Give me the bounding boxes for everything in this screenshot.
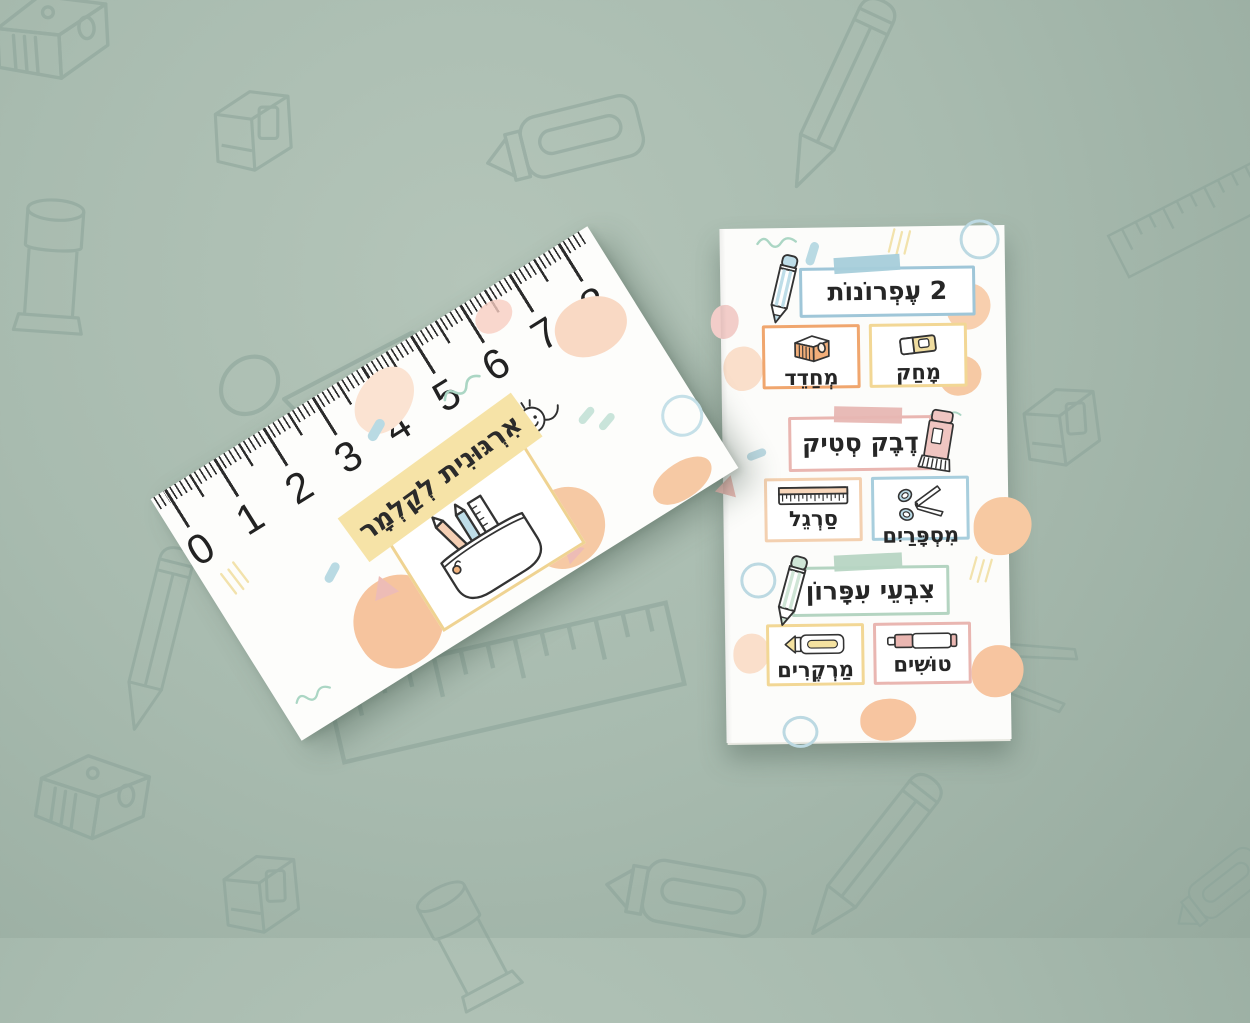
- supply-label: מַרְקֶרִים: [777, 657, 854, 682]
- ruler-icon: [777, 485, 849, 506]
- bg-sharpener-icon: [23, 742, 161, 860]
- supply-label: טוּשִׁים: [893, 652, 952, 677]
- supply-label: מִסְפָּרַיִם: [882, 523, 959, 548]
- supplies-checklist-card: 2 עֶפְרוֹנוֹת מְחַדֵד מָחַק דֶבֶק סְטִיק…: [719, 225, 1011, 743]
- supply-item-box: מִסְפָּרַיִם: [871, 476, 970, 541]
- bg-marker-icon: [593, 834, 776, 954]
- supply-item-box: טוּשִׁים: [873, 622, 972, 685]
- supply-item-box: סַרְגֵל: [764, 477, 863, 542]
- supply-item-box: מַרְקֶרִים: [766, 623, 865, 686]
- washi-tape: [834, 406, 902, 423]
- supply-item-box: מְחַדֵד: [762, 324, 861, 389]
- marker-icon: [886, 630, 958, 652]
- highlighter-icon: [782, 631, 848, 657]
- peach-smudge: [733, 633, 770, 673]
- eraser-icon: [896, 331, 940, 360]
- supply-label: 2 עֶפְרוֹנוֹת: [827, 276, 947, 306]
- bg-highlighter-icon: [470, 76, 657, 204]
- bg-sharpener-icon: [0, 0, 123, 100]
- yellow-lines: [968, 554, 996, 587]
- peach-smudge: [720, 343, 768, 394]
- ruler-number: 2: [278, 464, 320, 512]
- supply-banner-box: 2 עֶפְרוֹנוֹת: [799, 265, 976, 317]
- green-squiggle: [756, 236, 798, 250]
- green-squiggle: [292, 682, 334, 709]
- bg-glue-stick-icon: [397, 861, 533, 1022]
- supply-label: דֶבֶק סְטִיק: [802, 428, 919, 458]
- supply-item-box: מָחַק: [869, 323, 968, 388]
- yellow-lines: [216, 557, 257, 598]
- bg-glue-stick-icon: [3, 187, 101, 343]
- ruler-number: 1: [229, 494, 271, 542]
- washi-tape: [834, 552, 903, 571]
- bg-pencil-icon: [745, 0, 931, 221]
- bg-eraser-icon: [192, 73, 313, 185]
- pencil-icon: [762, 250, 804, 328]
- blue-circle-outline: [959, 219, 1000, 260]
- blue-circle-outline: [782, 716, 818, 748]
- blue-circle-outline: [653, 387, 711, 445]
- sharpener-icon: [788, 332, 834, 365]
- teal-dash: [597, 411, 616, 431]
- blue-dash: [323, 561, 341, 585]
- supply-banner-box: דֶבֶק סְטִיק: [788, 415, 933, 472]
- blue-dash: [804, 241, 820, 267]
- desk-scene: 0 1 2 3 4 5 6 7 8 אִרְגּוּנִית לְקַלְמָר: [0, 0, 1250, 938]
- peach-blob: [860, 698, 917, 741]
- bg-pencil-icon: [763, 742, 978, 976]
- bg-marker-icon: [1144, 818, 1250, 961]
- scissors-icon: [895, 484, 946, 523]
- peach-smudge: [547, 288, 635, 365]
- supply-label: צִבְעֵי עִפָּרוֹן: [806, 576, 936, 607]
- bg-eraser-icon: [999, 368, 1121, 483]
- supply-banner-box: צִבְעֵי עִפָּרוֹן: [791, 565, 950, 617]
- supply-label: סַרְגֵל: [789, 506, 838, 531]
- supply-label: מְחַדֵד: [784, 365, 839, 390]
- peach-blob: [645, 448, 720, 514]
- peach-blob: [973, 497, 1032, 556]
- blue-circle-outline: [740, 562, 776, 598]
- bg-ruler-icon: [1097, 129, 1250, 296]
- pink-blob: [710, 305, 738, 339]
- teal-dash: [577, 405, 596, 425]
- ruler-number: 3: [327, 433, 369, 481]
- bg-eraser-icon: [198, 836, 323, 949]
- supply-label: מָחַק: [896, 360, 941, 385]
- blue-dash: [746, 447, 768, 462]
